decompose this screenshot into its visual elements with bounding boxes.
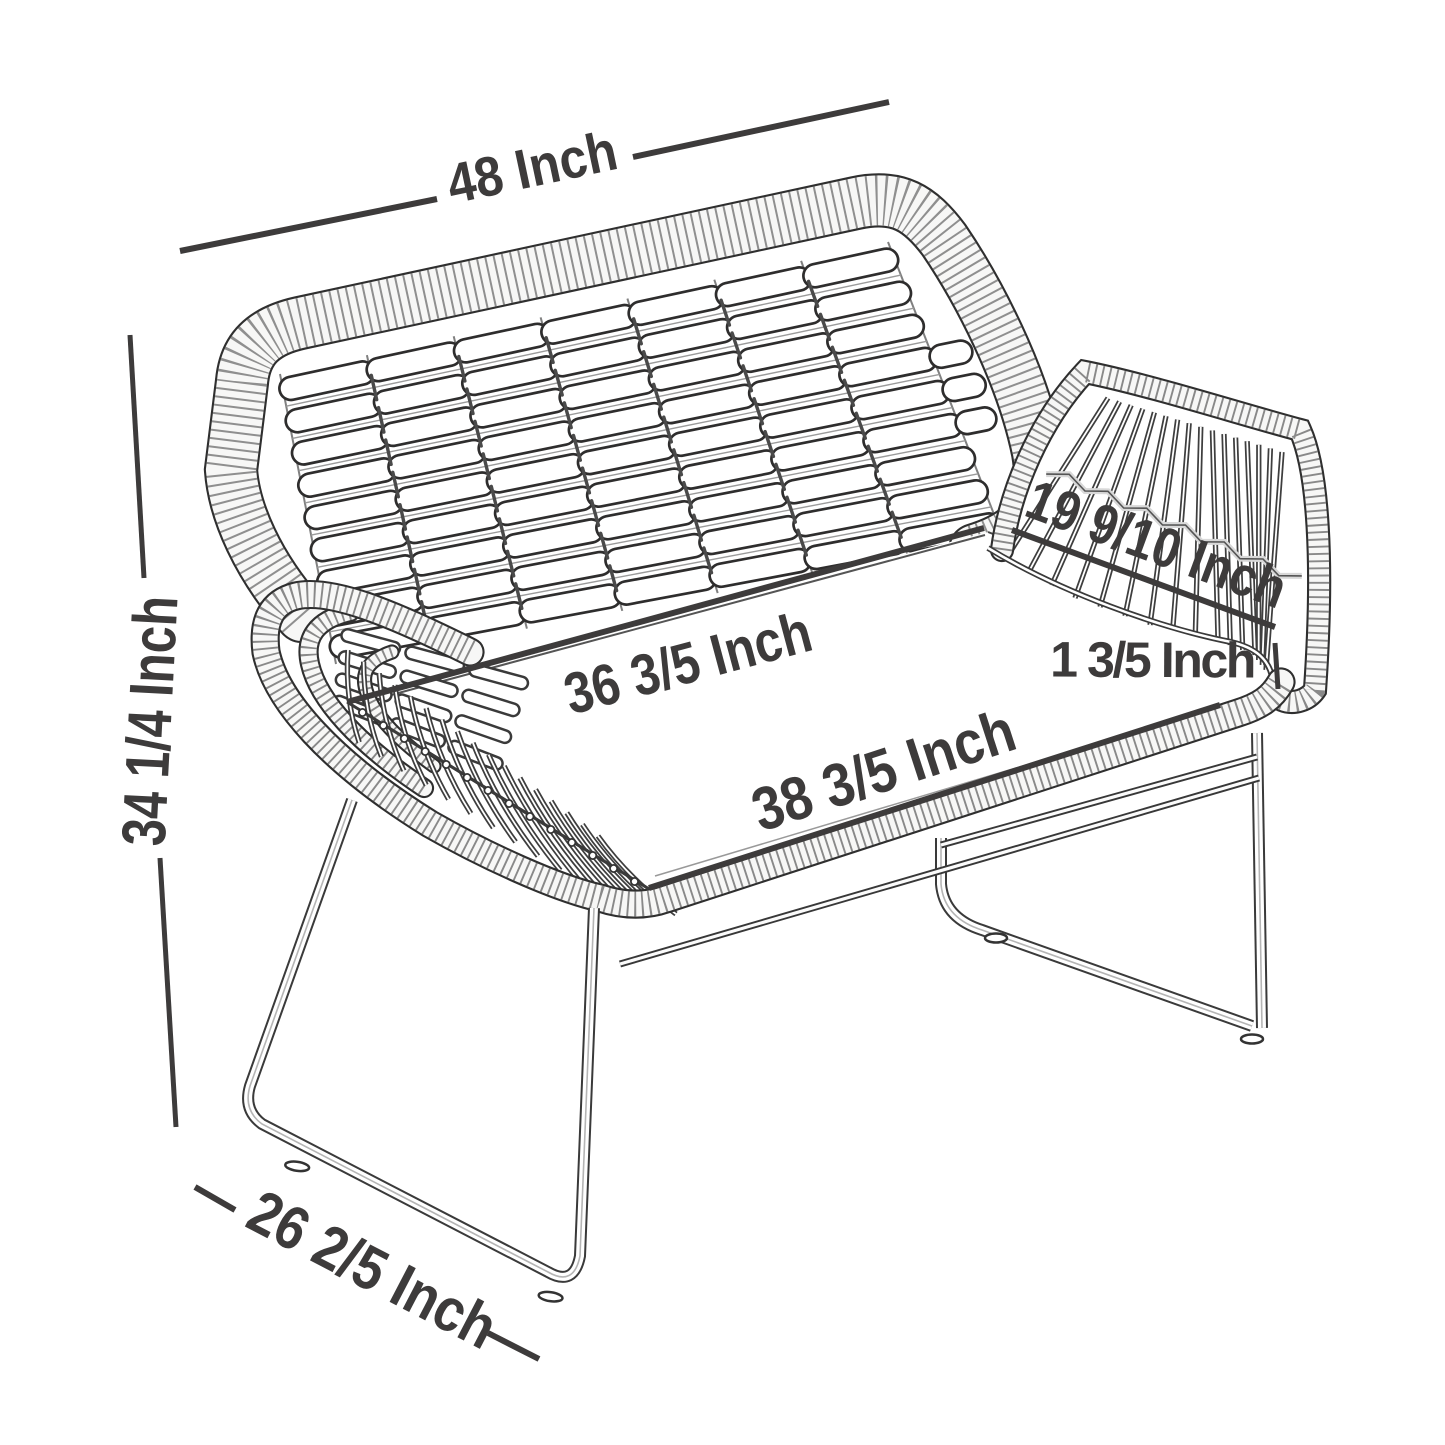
svg-text:34 1/4 Inch: 34 1/4 Inch bbox=[110, 594, 192, 847]
svg-text:1 3/5 Inch: 1 3/5 Inch bbox=[1050, 632, 1254, 689]
